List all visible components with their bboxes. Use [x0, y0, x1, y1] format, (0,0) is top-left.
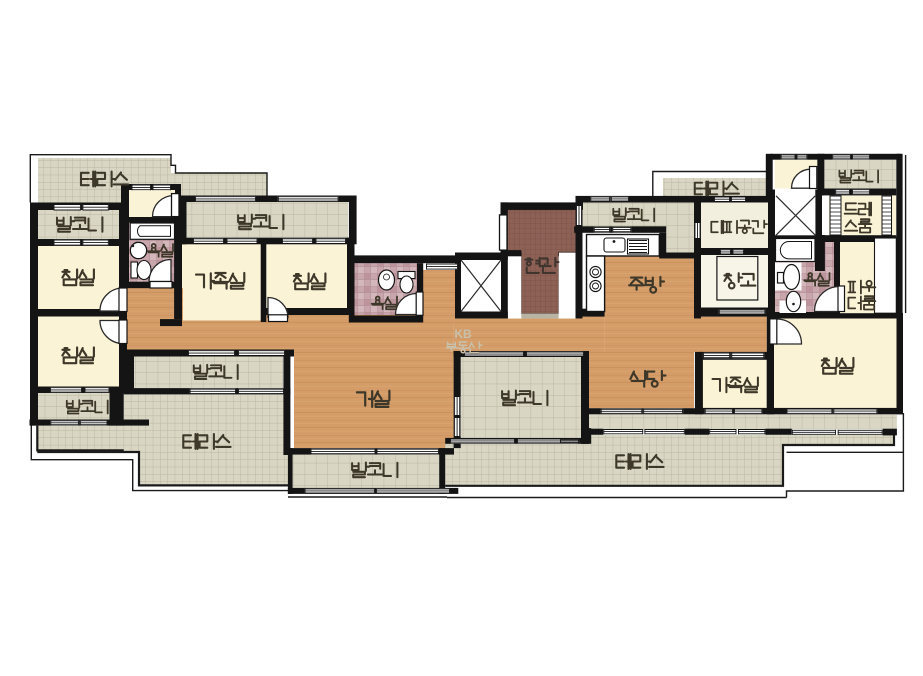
svg-text:KB: KB	[454, 327, 472, 341]
